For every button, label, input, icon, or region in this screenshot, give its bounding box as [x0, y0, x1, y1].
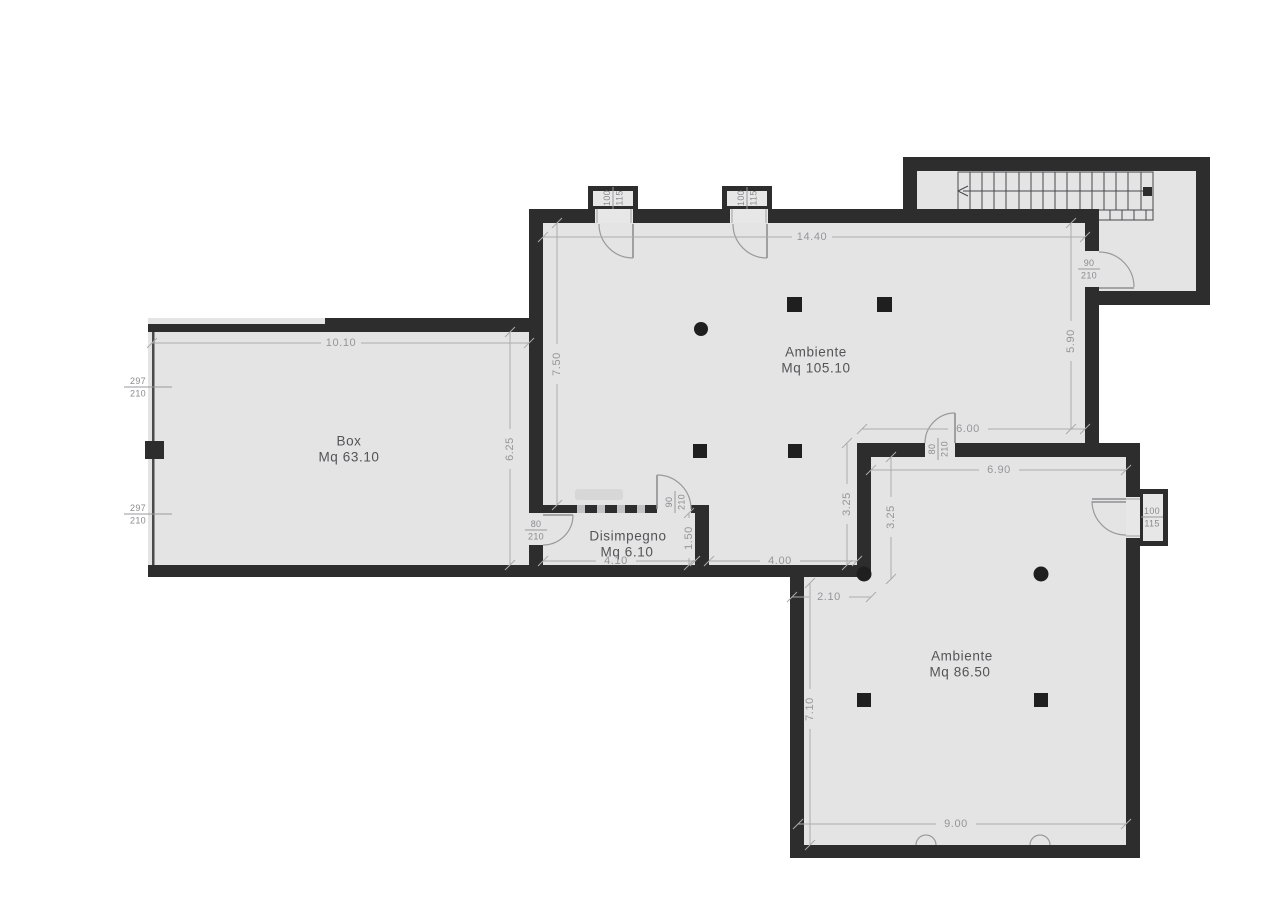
dimension-text: 7.50 — [551, 352, 563, 376]
room-area-lower: Mq 86.50 — [929, 665, 990, 680]
wall — [148, 324, 325, 332]
wall — [695, 505, 709, 577]
dimension-text: 3.25 — [885, 505, 897, 529]
wall — [790, 571, 804, 858]
wall — [790, 845, 1140, 858]
dimension-text: 4.10 — [604, 555, 628, 567]
opening-width: 80 — [927, 444, 937, 455]
opening-height: 115 — [1144, 519, 1159, 529]
dimension-text: 3.25 — [841, 492, 853, 516]
dimension-text: 2.10 — [817, 591, 841, 603]
round-column — [857, 567, 872, 582]
pillar — [145, 441, 164, 459]
dimension-text: 6.25 — [504, 437, 516, 461]
wall — [768, 209, 1099, 223]
dimension-text: 6.90 — [987, 464, 1011, 476]
opening-height: 210 — [528, 532, 544, 542]
wall — [903, 157, 917, 209]
opening-height: 210 — [130, 516, 146, 526]
pillar — [857, 693, 871, 707]
wall — [1085, 287, 1099, 443]
wall — [325, 318, 543, 332]
wall — [1196, 157, 1210, 305]
watermark — [575, 489, 623, 500]
opening-width: 100 — [736, 190, 746, 206]
dimension-text: 5.90 — [1065, 329, 1077, 353]
glazed-partition — [577, 505, 657, 513]
pillar — [787, 297, 802, 312]
dimension-text: 10.10 — [326, 337, 357, 349]
wall — [1085, 223, 1099, 251]
room-name-main: Ambiente — [785, 345, 847, 360]
opening-width: 297 — [130, 376, 146, 386]
wall — [529, 209, 543, 513]
wall — [148, 565, 871, 577]
wall — [1126, 538, 1140, 845]
opening-width: 100 — [1144, 506, 1160, 516]
floor-plan-drawing: Ambiente Mq 105.10 Box Mq 63.10 Disimpeg… — [0, 0, 1280, 906]
opening-width: 80 — [531, 519, 542, 529]
floor-plan: Ambiente Mq 105.10 Box Mq 63.10 Disimpeg… — [0, 0, 1280, 906]
opening-height: 115 — [749, 190, 759, 205]
dimension-text: 7.10 — [804, 697, 816, 721]
wall — [543, 505, 577, 513]
round-column — [694, 322, 708, 336]
dimension-text: 6.00 — [956, 423, 980, 435]
wall — [857, 443, 871, 571]
pillar — [877, 297, 892, 312]
room-name-lower: Ambiente — [931, 649, 993, 664]
wall — [1126, 443, 1140, 497]
opening-height: 210 — [130, 389, 146, 399]
opening-height: 210 — [677, 494, 687, 510]
opening-width: 90 — [664, 497, 674, 508]
dimension-text: 1.50 — [683, 526, 695, 550]
opening-height: 210 — [940, 441, 950, 457]
dimension-text: 4.00 — [768, 555, 792, 567]
wall — [903, 157, 1210, 171]
dimension-text: 14.40 — [797, 231, 828, 243]
pillar — [1034, 693, 1048, 707]
dimension-text: 9.00 — [944, 818, 968, 830]
stair-start-marker — [1143, 187, 1152, 196]
wall — [955, 443, 1140, 457]
room-area-box: Mq 63.10 — [318, 450, 379, 465]
opening-height: 210 — [1081, 271, 1097, 281]
pillar — [693, 444, 707, 458]
opening-height: 115 — [615, 190, 625, 205]
opening-width: 100 — [602, 190, 612, 206]
room-area-main: Mq 105.10 — [781, 361, 850, 376]
round-column — [1034, 567, 1049, 582]
opening-width: 297 — [130, 503, 146, 513]
pillar — [788, 444, 802, 458]
wall — [1085, 291, 1210, 305]
wall — [633, 209, 730, 223]
room-name-disimpegno: Disimpegno — [589, 529, 666, 544]
opening-width: 90 — [1084, 258, 1095, 268]
room-name-box: Box — [336, 434, 361, 449]
